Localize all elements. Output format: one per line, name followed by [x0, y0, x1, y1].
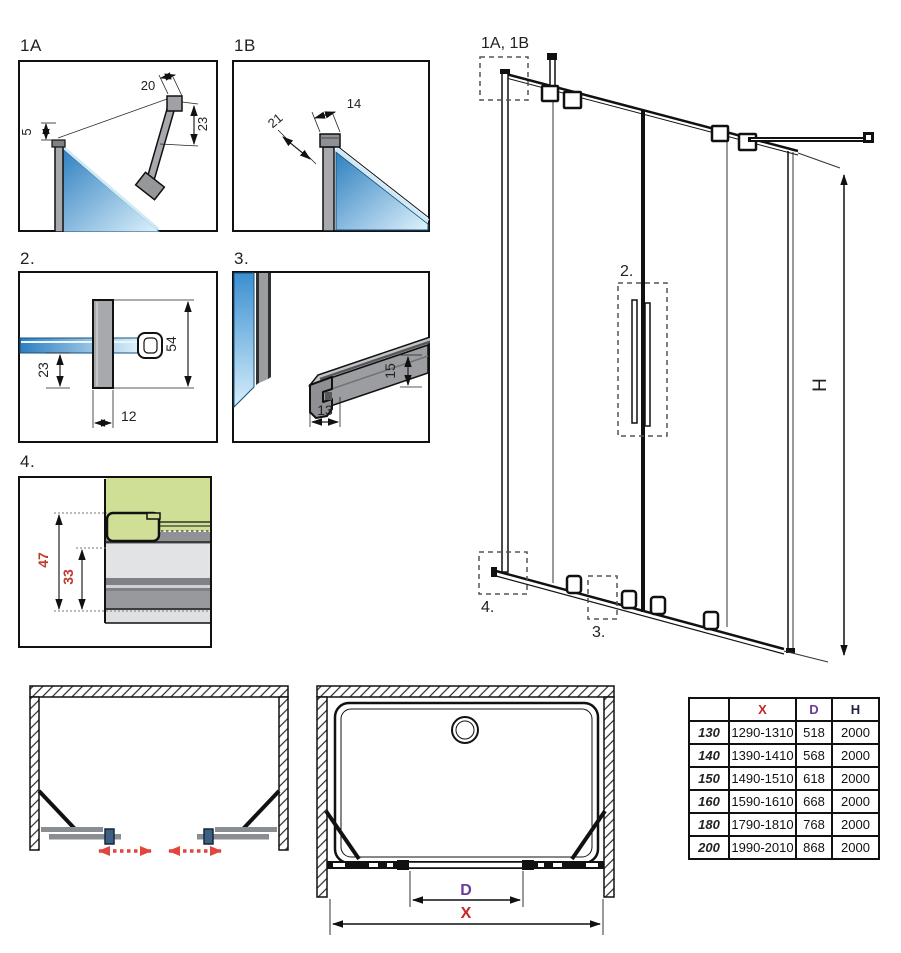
dim-X: X [461, 905, 472, 922]
rail-guide-block [651, 597, 665, 614]
handle-bar [645, 303, 650, 426]
rail-channel [325, 392, 332, 400]
dim-20: 20 [141, 78, 155, 93]
support-brace [39, 791, 75, 829]
table-row: 150 1490-1510 618 2000 [689, 767, 879, 790]
table-row: 180 1790-1810 768 2000 [689, 813, 879, 836]
door-handle-marker [105, 829, 114, 844]
table-cell-x: 1390-1410 [729, 744, 796, 767]
wall-left [30, 697, 39, 850]
table-cell-x: 1790-1810 [729, 813, 796, 836]
dim-15: 15 [382, 363, 398, 379]
table-cell-h: 2000 [832, 767, 879, 790]
dim-13: 13 [317, 402, 333, 418]
table-cell-d: 568 [796, 744, 832, 767]
detail-3-drawing: 15 13 [232, 271, 430, 443]
table-cell-x: 1990-2010 [729, 836, 796, 859]
callout-label-3: 3. [592, 624, 605, 641]
profile-edge [268, 273, 271, 379]
glass-panel [234, 273, 254, 407]
wall-right [604, 697, 614, 897]
support-brace [243, 791, 279, 829]
detail-2-label: 2. [20, 249, 35, 269]
detail-1a-drawing: 20 23 5 [18, 60, 218, 232]
rail-layer [106, 544, 210, 578]
table-cell-size: 180 [689, 813, 729, 836]
profile-cap [320, 134, 340, 147]
shower-tray [335, 703, 598, 863]
ceiling-pin [550, 58, 555, 88]
dim-12: 12 [121, 408, 137, 424]
table-cell-size: 200 [689, 836, 729, 859]
size-table: X D H 130 1290-1310 518 2000 140 1390-14… [688, 697, 880, 860]
table-cell-d: 618 [796, 767, 832, 790]
table-cell-h: 2000 [832, 813, 879, 836]
profile-edge [259, 273, 268, 383]
dim-14: 14 [347, 96, 361, 111]
dim-54: 54 [163, 336, 179, 352]
fixed-panel [215, 827, 277, 832]
fixed-panel [41, 827, 103, 832]
dim-5: 5 [19, 128, 34, 135]
table-cell-h: 2000 [832, 836, 879, 859]
wall-profile [55, 145, 63, 232]
rail-layer [106, 610, 210, 623]
rail-guide-block [622, 591, 636, 608]
detail-frame [19, 272, 217, 442]
rail-guide-block [567, 576, 581, 593]
callout-label-2: 2. [620, 263, 633, 280]
dim-23: 23 [35, 362, 51, 378]
dim-H: H [810, 378, 831, 392]
table-row: 130 1290-1310 518 2000 [689, 721, 879, 744]
detail-3-label: 3. [234, 249, 249, 269]
wall-left [317, 697, 327, 897]
table-cell-size: 150 [689, 767, 729, 790]
table-row: 140 1390-1410 568 2000 [689, 744, 879, 767]
table-cell-size: 130 [689, 721, 729, 744]
dim-47: 47 [35, 552, 51, 568]
table-cell-x: 1290-1310 [729, 721, 796, 744]
table-cell-d: 518 [796, 721, 832, 744]
technical-drawing-sheet: 1A 20 23 5 1B 14 21 2. 54 [0, 0, 901, 953]
detail-4-label: 4. [20, 452, 35, 472]
dim-D: D [460, 882, 472, 899]
bottom-rail [496, 571, 784, 649]
door-bottom-step [147, 513, 160, 519]
table-cell-x: 1490-1510 [729, 767, 796, 790]
wall-top [317, 686, 614, 697]
wall-top [30, 686, 288, 697]
detail-1a-label: 1A [20, 36, 42, 56]
handle-bar [632, 300, 637, 423]
wall-profile [323, 147, 334, 231]
table-header-x: X [729, 698, 796, 721]
table-header-d: D [796, 698, 832, 721]
rail-clamp [564, 92, 581, 108]
detail-2-drawing: 54 23 12 [18, 271, 218, 443]
wall-bracket [167, 96, 182, 111]
plan-view-opening [25, 683, 295, 873]
table-cell-d: 668 [796, 790, 832, 813]
glass-panel [20, 338, 140, 353]
detail-1b-label: 1B [234, 36, 256, 56]
table-header-h: H [832, 698, 879, 721]
handle-bar [93, 300, 113, 388]
table-cell-h: 2000 [832, 744, 879, 767]
sliding-door-pair [403, 862, 528, 868]
dim-33: 33 [60, 569, 76, 585]
dim-23: 23 [195, 117, 210, 131]
plan-view-tray: D X [313, 683, 618, 943]
table-row: 160 1590-1610 668 2000 [689, 790, 879, 813]
handle-end-cap [138, 333, 162, 358]
callout-label-1a1b: 1A, 1B [481, 35, 529, 52]
size-table-wrap: X D H 130 1290-1310 518 2000 140 1390-14… [688, 697, 880, 860]
table-header-row: X D H [689, 698, 879, 721]
table-cell-h: 2000 [832, 790, 879, 813]
wall-right [279, 697, 288, 850]
profile-edge [256, 273, 259, 385]
rail-layer [106, 591, 210, 608]
door-handle-marker [204, 829, 213, 844]
callout-label-4: 4. [481, 599, 494, 616]
table-row: 200 1990-2010 868 2000 [689, 836, 879, 859]
table-header-size [689, 698, 729, 721]
table-cell-d: 768 [796, 813, 832, 836]
table-cell-size: 160 [689, 790, 729, 813]
rail-clamp [712, 126, 728, 141]
table-cell-h: 2000 [832, 721, 879, 744]
elevation-drawing: H 1A, 1B 2. 3. 4. [460, 20, 901, 680]
detail-1b-drawing: 14 21 [232, 60, 430, 232]
rail-guide-block [704, 612, 718, 629]
left-wall-profile [502, 72, 508, 572]
table-cell-x: 1590-1610 [729, 790, 796, 813]
table-cell-d: 868 [796, 836, 832, 859]
rail-clamp [542, 86, 558, 101]
detail-4-drawing: 47 33 [18, 476, 212, 648]
profile-cap [52, 140, 65, 147]
table-cell-size: 140 [689, 744, 729, 767]
